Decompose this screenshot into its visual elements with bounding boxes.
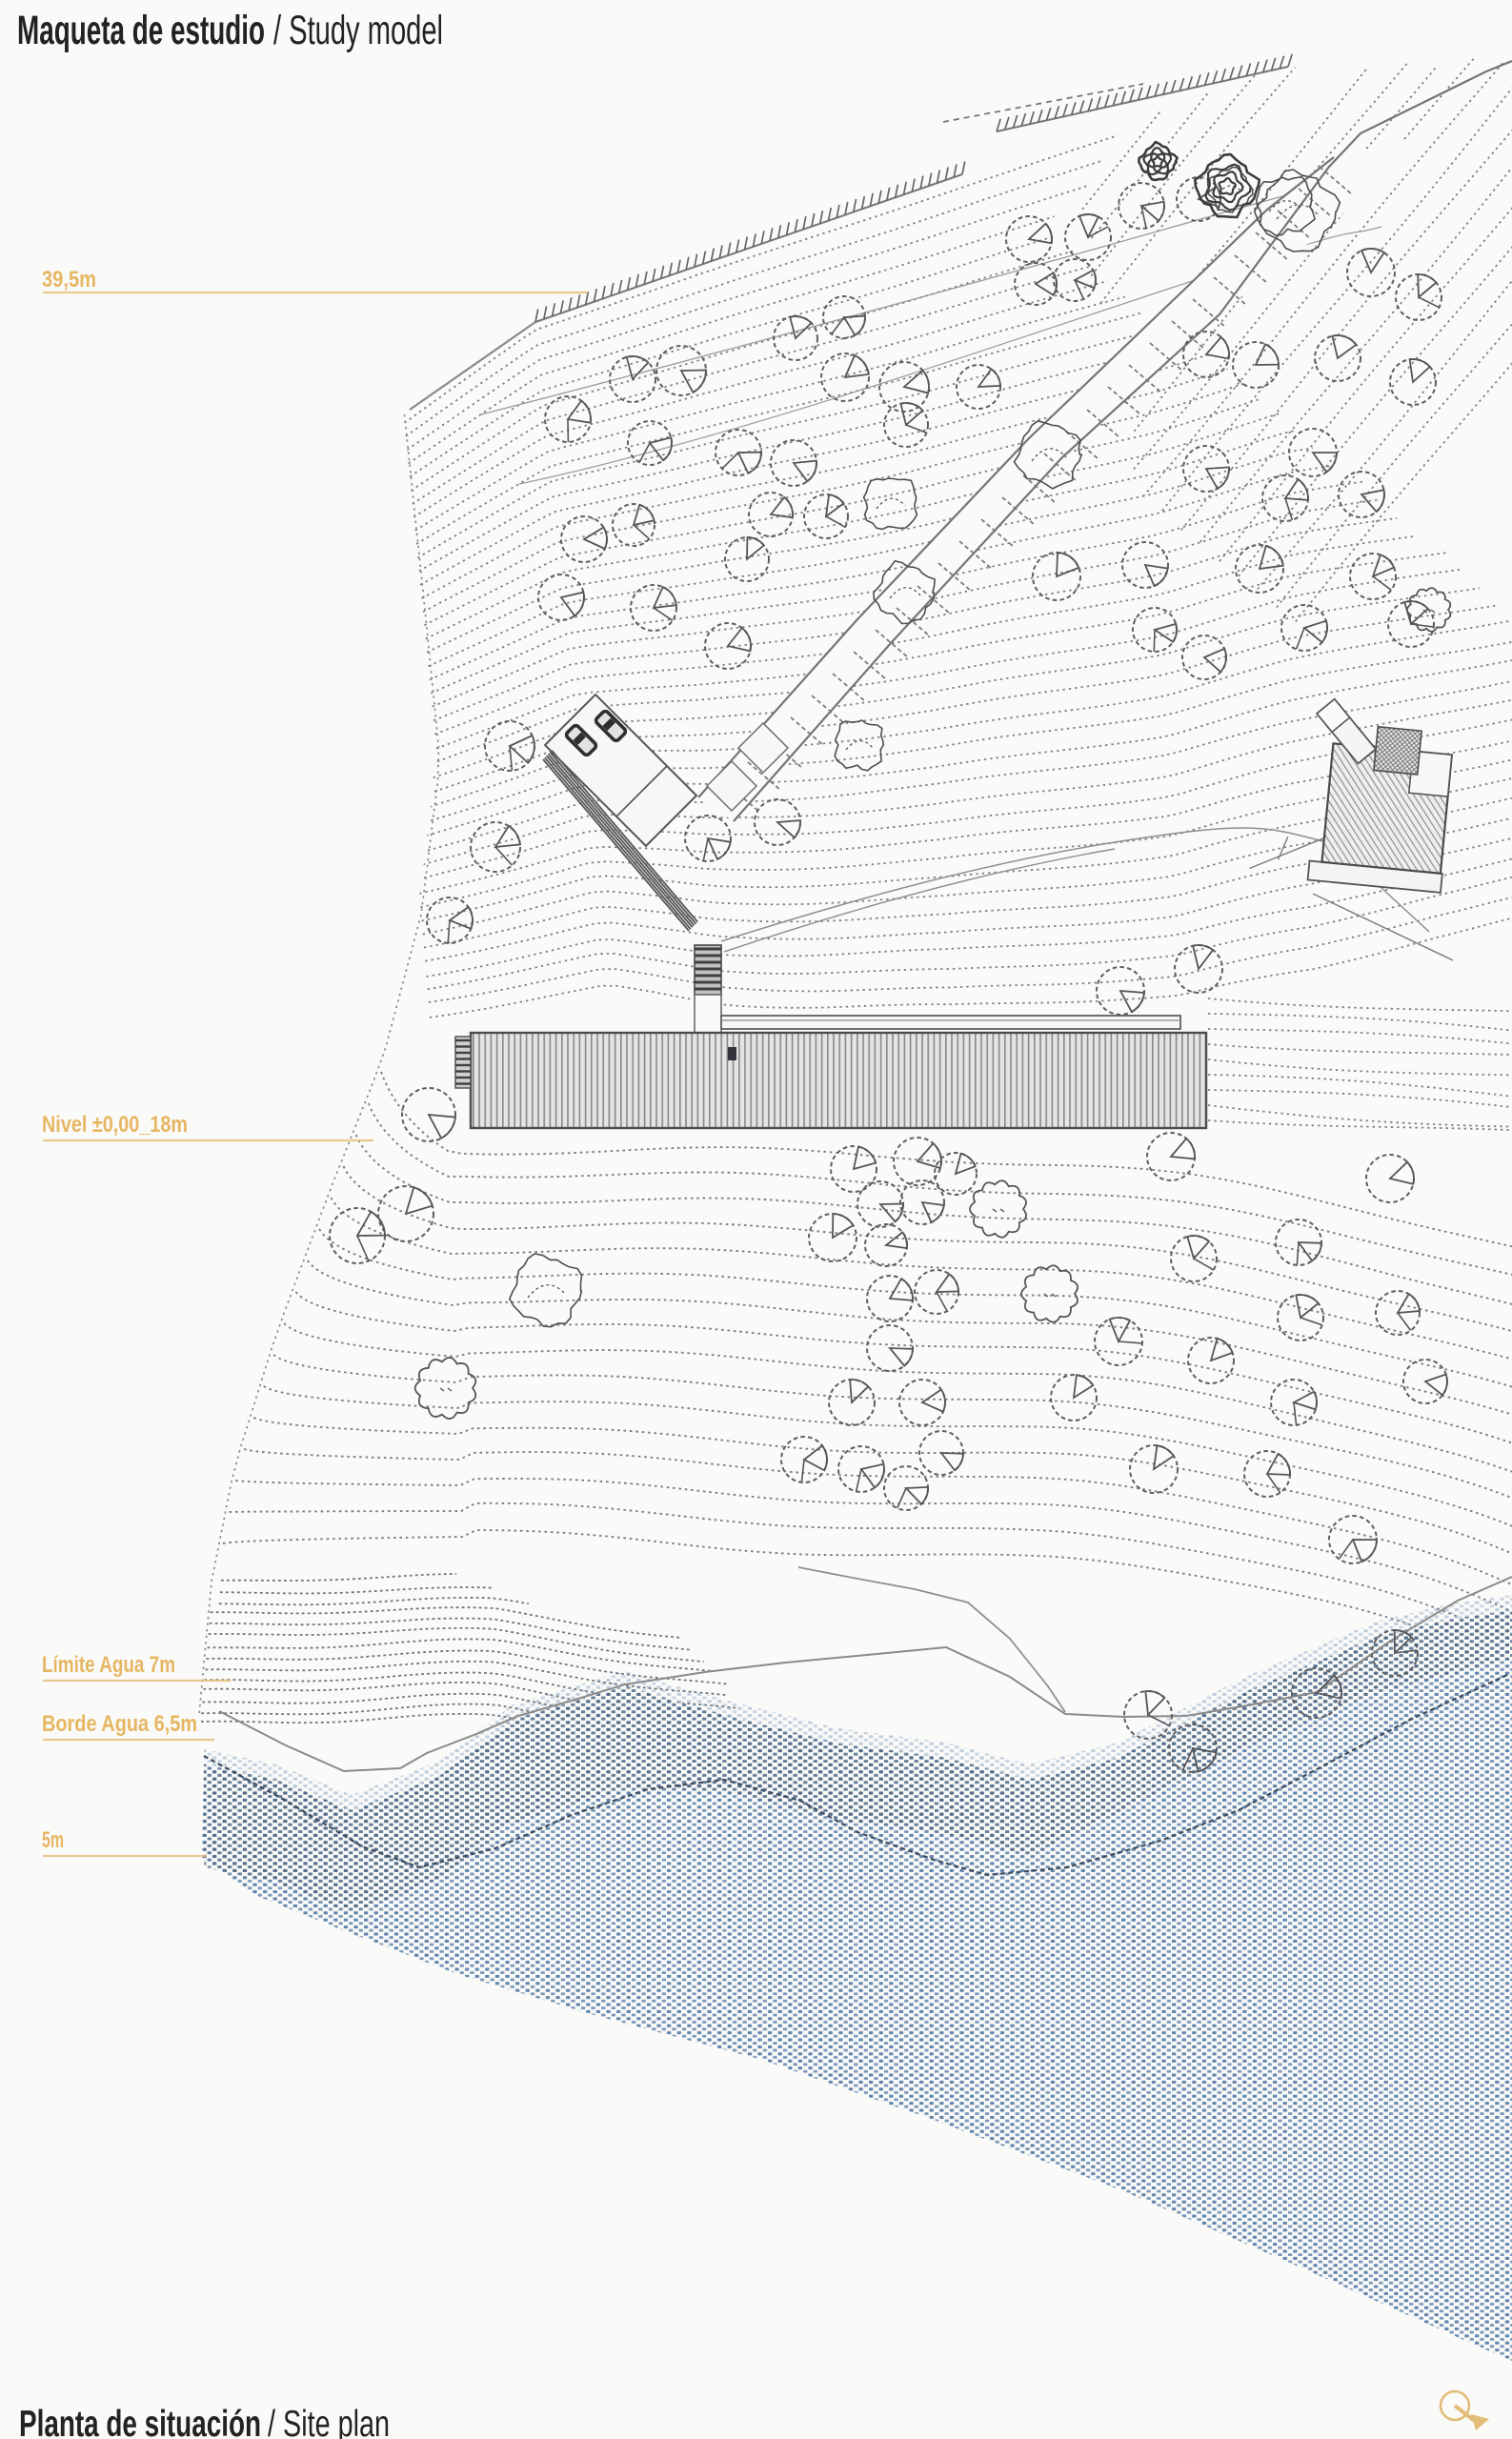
svg-text:Maqueta de estudio: Maqueta de estudio (17, 8, 265, 53)
svg-text:/ Site plan: / Site plan (268, 2404, 390, 2439)
svg-text:39,5m: 39,5m (42, 267, 96, 292)
svg-text:/ Study model: / Study model (273, 8, 443, 53)
svg-text:Planta de situación: Planta de situación (19, 2404, 261, 2439)
svg-text:5m: 5m (42, 1827, 64, 1853)
svg-text:Límite Agua 7m: Límite Agua 7m (42, 1652, 175, 1678)
svg-text:Nivel ±0,00_18m: Nivel ±0,00_18m (42, 1112, 188, 1138)
svg-text:Borde Agua 6,5m: Borde Agua 6,5m (42, 1711, 197, 1737)
